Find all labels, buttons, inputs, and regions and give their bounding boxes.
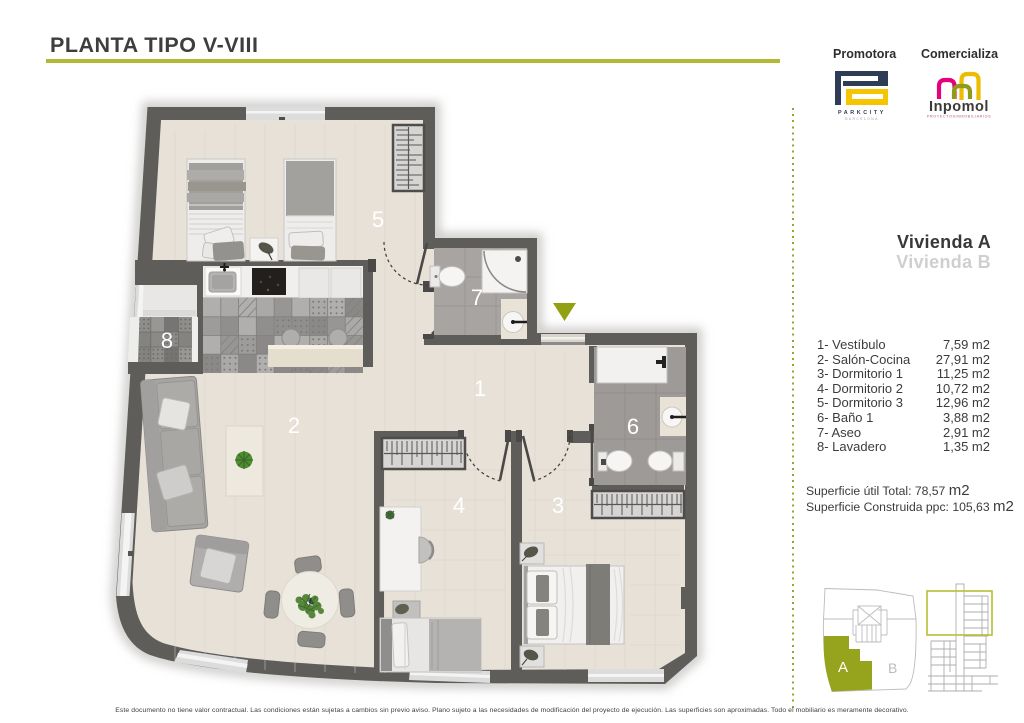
svg-text:1: 1 [474,376,486,401]
svg-text:8: 8 [161,328,173,353]
svg-text:7: 7 [471,285,483,310]
svg-text:2: 2 [288,413,300,438]
svg-text:5: 5 [372,207,384,232]
svg-text:4: 4 [453,493,465,518]
svg-text:3: 3 [552,493,564,518]
svg-text:6: 6 [627,414,639,439]
